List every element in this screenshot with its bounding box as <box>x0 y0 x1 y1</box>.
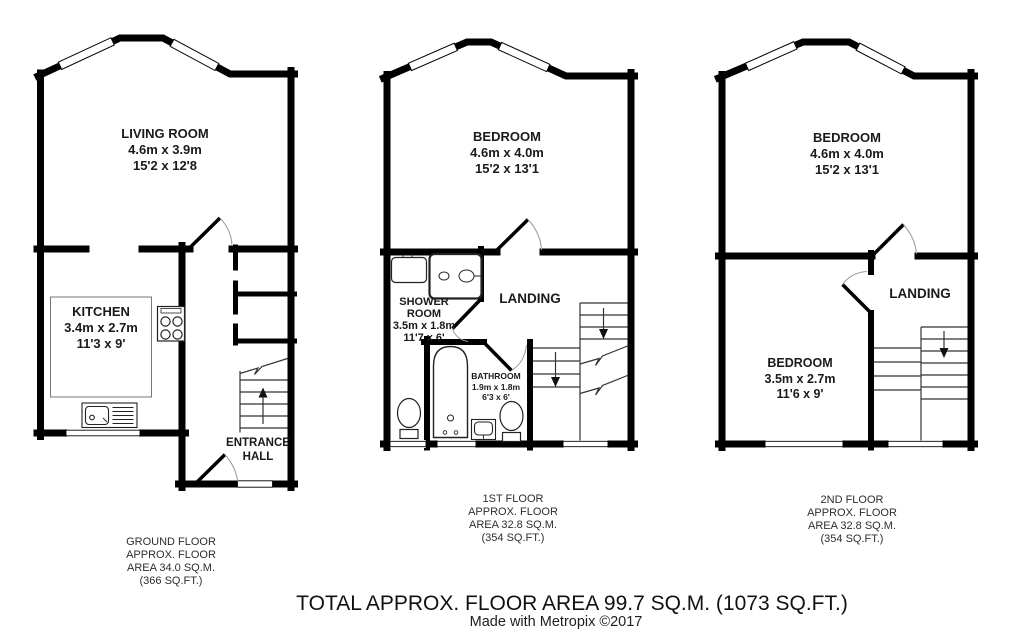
second-bedroom-back-label: BEDROOM 3.5m x 2.7m 11'6 x 9' <box>765 356 836 403</box>
kitchen-label: KITCHEN 3.4m x 2.7m 11'3 x 9' <box>64 304 138 352</box>
stairs-down-arrow-3 <box>940 348 949 358</box>
second-landing-label: LANDING <box>889 286 951 301</box>
stairs-down-arrow <box>599 329 608 339</box>
toilet-left <box>398 399 421 439</box>
first-landing-label: LANDING <box>499 291 561 306</box>
second-floor-caption: 2ND FLOOR APPROX. FLOOR AREA 32.8 SQ.M. … <box>807 494 897 546</box>
shower-basin <box>392 254 427 283</box>
bathroom-basin <box>472 420 496 440</box>
ground-stairs <box>240 359 288 433</box>
metropix-credit-text: Made with Metropix ©2017 <box>470 614 643 630</box>
shower-cubicle <box>430 254 482 299</box>
first-floor-caption: 1ST FLOOR APPROX. FLOOR AREA 32.8 SQ.M. … <box>468 493 558 545</box>
stairs-down-arrow-2 <box>551 377 560 387</box>
kitchen-sink <box>82 403 137 428</box>
second-stairs <box>874 327 968 441</box>
ground-floor-plan <box>37 38 295 488</box>
entrance-hall-label: ENTRANCE HALL <box>226 436 290 464</box>
floorplan-page: LIVING ROOM 4.6m x 3.9m 15'2 x 12'8 KITC… <box>0 0 1024 636</box>
first-bedroom-label: BEDROOM 4.6m x 4.0m 15'2 x 13'1 <box>470 129 544 177</box>
front-door-opening <box>237 480 273 488</box>
hob <box>158 307 185 342</box>
second-bedroom-front-label: BEDROOM 4.6m x 4.0m 15'2 x 13'1 <box>810 130 884 178</box>
ground-walls <box>37 38 295 488</box>
ground-closet-walls <box>236 247 295 343</box>
kitchen-window <box>66 429 140 437</box>
first-fixtures <box>392 254 524 442</box>
living-room-label: LIVING ROOM 4.6m x 3.9m 15'2 x 12'8 <box>121 126 208 174</box>
bathroom-label: BATHROOM 1.9m x 1.8m 6'3 x 6' <box>471 371 520 403</box>
first-bay-windows <box>408 42 550 71</box>
total-floor-area-text: TOTAL APPROX. FLOOR AREA 99.7 SQ.M. (107… <box>296 592 848 616</box>
first-stairs <box>533 303 628 441</box>
second-bay-windows <box>745 42 905 74</box>
toilet-right <box>500 402 523 442</box>
shower-room-label: SHOWER ROOM 3.5m x 1.8m 11'7 x 6' <box>393 296 455 344</box>
ground-floor-caption: GROUND FLOOR APPROX. FLOOR AREA 34.0 SQ.… <box>126 536 216 588</box>
second-floor-plan <box>719 42 975 448</box>
bathtub <box>434 347 468 438</box>
ground-bay-windows <box>58 38 218 71</box>
